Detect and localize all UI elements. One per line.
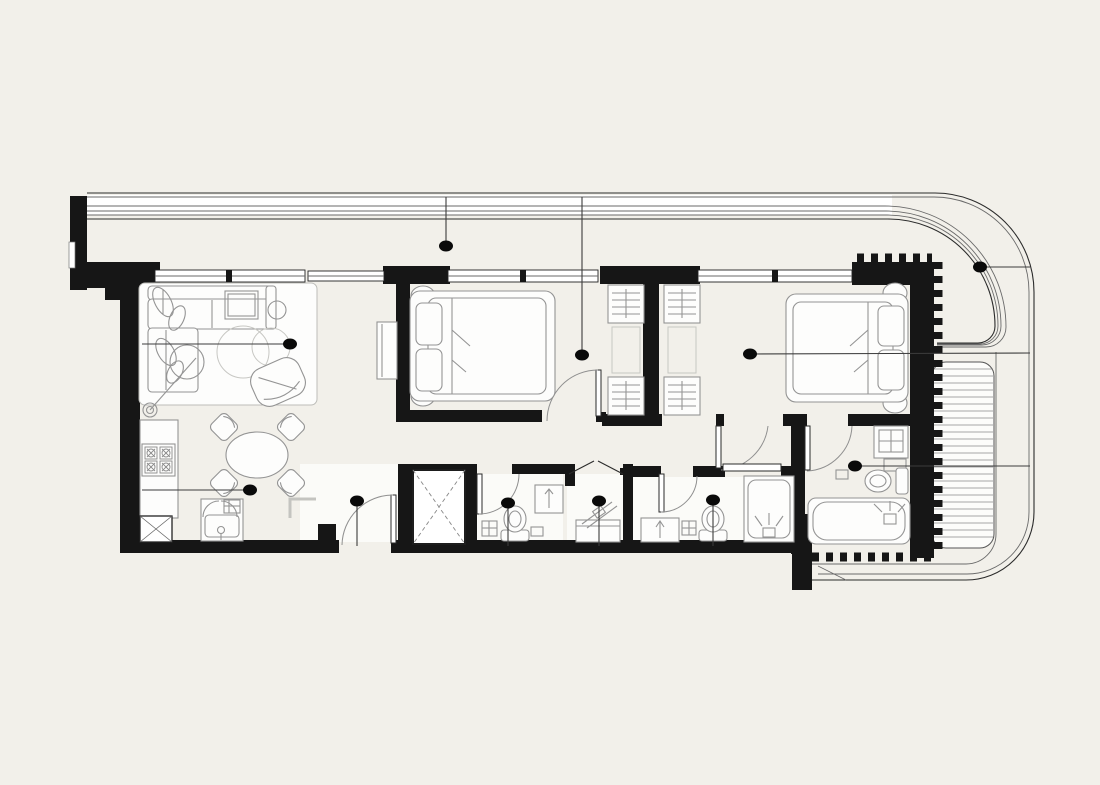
ensuite-bathroom <box>808 426 910 544</box>
windows <box>155 270 852 282</box>
bed-1 <box>410 291 555 401</box>
bed-2 <box>786 294 908 402</box>
balcony-walkway <box>87 195 892 215</box>
floor-plan <box>0 0 1100 785</box>
wardrobe <box>664 377 700 415</box>
washing-machine <box>641 518 679 542</box>
door-ensuite <box>805 426 852 471</box>
window-bedroom-2 <box>698 270 852 282</box>
open-shelf <box>668 327 696 373</box>
hotspot-bedroom-2[interactable] <box>743 349 757 360</box>
window-living-2 <box>308 271 384 281</box>
shower <box>744 476 794 542</box>
hotspot-bedroom-1[interactable] <box>575 350 589 361</box>
bathtub <box>808 498 910 544</box>
washing-machine <box>535 485 563 513</box>
hotspot-balcony-right[interactable] <box>973 262 987 273</box>
hotspot-ensuite-bathroom[interactable] <box>848 461 862 472</box>
service-shaft-kitchen <box>140 516 172 542</box>
window-bedroom-1 <box>448 270 598 282</box>
floor-plan-canvas <box>0 0 1100 785</box>
bedroom-1 <box>410 286 555 406</box>
entrance-hall-floor <box>300 464 400 542</box>
kitchen <box>140 411 316 542</box>
bedroom-2 <box>786 283 908 413</box>
hotspot-entrance-hall[interactable] <box>350 496 364 507</box>
kitchen-sink-unit <box>201 499 243 541</box>
hotspot-bathroom-2[interactable] <box>706 495 720 506</box>
dining-table <box>226 432 288 478</box>
hotspot-living-room[interactable] <box>283 339 297 350</box>
open-shelf <box>612 327 640 373</box>
balcony-cut-line <box>818 566 846 580</box>
hotspot-bathroom-1[interactable] <box>501 498 515 509</box>
tv-unit <box>377 322 397 379</box>
service-shaft <box>413 470 465 544</box>
toilet <box>836 468 908 494</box>
living-room <box>139 283 397 417</box>
wardrobe <box>608 285 644 323</box>
wardrobe <box>664 285 700 323</box>
hotspot-balcony-top[interactable] <box>439 241 453 252</box>
wardrobe <box>608 377 644 415</box>
hotspot-laundry[interactable] <box>592 496 606 507</box>
hotspot-kitchen[interactable] <box>243 485 257 496</box>
window-living <box>155 270 305 282</box>
washbasin-unit <box>874 426 908 471</box>
side-window <box>69 242 75 268</box>
door-bedroom-2 <box>716 426 781 471</box>
